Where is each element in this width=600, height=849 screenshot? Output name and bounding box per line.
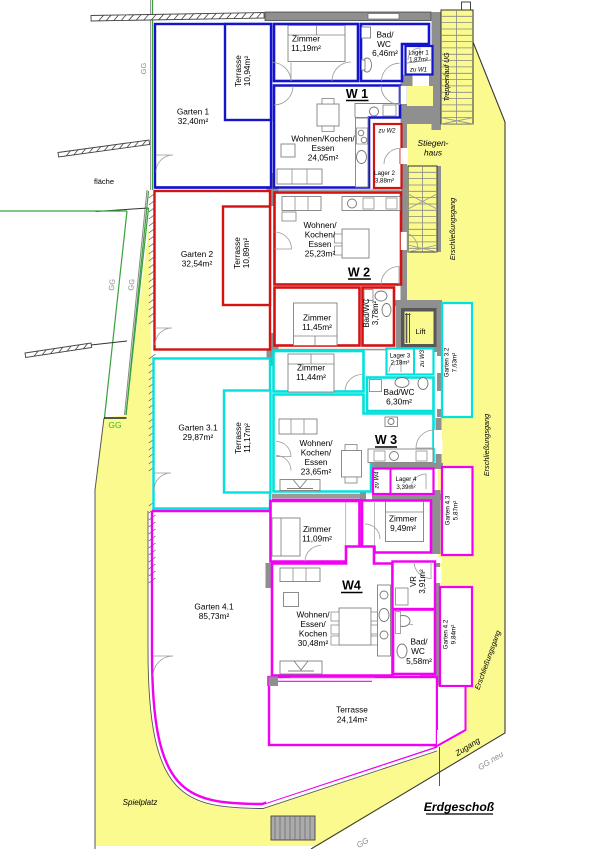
svg-text:Essen: Essen: [308, 239, 331, 249]
svg-text:Lager 1: Lager 1: [408, 51, 429, 57]
svg-text:23,65m²: 23,65m²: [301, 467, 332, 477]
svg-text:85,73m²: 85,73m²: [199, 611, 230, 621]
svg-text:Garten 4.3: Garten 4.3: [445, 495, 452, 525]
svg-text:9,84m²: 9,84m²: [451, 625, 458, 645]
svg-text:Wohnen/: Wohnen/: [299, 438, 333, 448]
svg-text:W 1: W 1: [346, 87, 368, 101]
svg-text:7,63m²: 7,63m²: [452, 353, 459, 373]
svg-text:W4: W4: [342, 579, 361, 593]
svg-text:WC: WC: [411, 646, 425, 656]
svg-text:zu W4: zu W4: [375, 471, 381, 490]
svg-text:GG: GG: [139, 63, 148, 75]
svg-text:Essen/: Essen/: [300, 619, 326, 629]
svg-text:Zimmer: Zimmer: [389, 514, 417, 524]
svg-text:Zimmer: Zimmer: [303, 313, 331, 323]
svg-text:Lager 3: Lager 3: [390, 354, 411, 360]
svg-text:Garten 2: Garten 2: [181, 249, 214, 259]
svg-text:24,14m²: 24,14m²: [337, 715, 368, 725]
svg-text:Lift: Lift: [415, 327, 426, 336]
svg-text:11,44m²: 11,44m²: [296, 372, 326, 382]
svg-text:6,46m²: 6,46m²: [372, 48, 398, 58]
svg-text:haus: haus: [424, 148, 442, 158]
svg-text:Zimmer: Zimmer: [303, 524, 331, 534]
svg-text:Bad/: Bad/: [410, 637, 428, 647]
svg-text:Erschließungsgang: Erschließungsgang: [448, 198, 457, 260]
svg-text:5,58m²: 5,58m²: [406, 656, 432, 666]
svg-text:Garten 3.2: Garten 3.2: [444, 347, 451, 377]
svg-text:zu W2: zu W2: [377, 129, 396, 135]
svg-text:10,94m²: 10,94m²: [242, 56, 252, 87]
svg-text:Wohnen/Kochen/: Wohnen/Kochen/: [291, 134, 355, 144]
svg-text:Kochen/: Kochen/: [305, 230, 336, 240]
svg-text:Zimmer: Zimmer: [292, 34, 320, 44]
svg-text:3,91m²: 3,91m²: [418, 569, 427, 594]
svg-text:GG: GG: [108, 420, 121, 430]
svg-text:Lager 4: Lager 4: [396, 476, 418, 483]
svg-text:Erschließungsgang: Erschließungsgang: [482, 414, 491, 476]
svg-text:Terrasse: Terrasse: [336, 705, 368, 715]
svg-text:GG neu: GG neu: [476, 749, 505, 772]
svg-text:Garten 4.1: Garten 4.1: [194, 602, 234, 612]
svg-text:25,23m²: 25,23m²: [305, 249, 336, 259]
svg-text:6,30m²: 6,30m²: [386, 397, 412, 407]
svg-text:3,78m²: 3,78m²: [371, 300, 380, 325]
svg-text:Lager 2: Lager 2: [374, 170, 396, 177]
svg-text:32,54m²: 32,54m²: [182, 259, 213, 269]
svg-text:Essen: Essen: [304, 457, 327, 467]
svg-text:Garten 4.2: Garten 4.2: [443, 619, 450, 649]
svg-text:GG: GG: [107, 278, 117, 291]
svg-text:5,87m²: 5,87m²: [453, 501, 460, 521]
svg-text:zu W3: zu W3: [420, 349, 426, 368]
svg-text:Zimmer: Zimmer: [297, 363, 325, 373]
svg-text:Wohnen/: Wohnen/: [296, 610, 330, 620]
svg-text:2,18m²: 2,18m²: [391, 361, 410, 367]
svg-text:Spielplatz: Spielplatz: [123, 798, 158, 807]
svg-text:10,89m²: 10,89m²: [241, 238, 251, 269]
svg-text:Garten 1: Garten 1: [177, 107, 210, 117]
svg-text:32,40m²: 32,40m²: [178, 116, 209, 126]
svg-text:9,49m²: 9,49m²: [390, 523, 416, 533]
svg-text:fläche: fläche: [94, 177, 114, 186]
svg-text:29,87m²: 29,87m²: [183, 432, 214, 442]
svg-text:Treppenlauf UG: Treppenlauf UG: [444, 52, 451, 102]
svg-text:Wohnen/: Wohnen/: [303, 220, 337, 230]
svg-text:11,09m²: 11,09m²: [302, 534, 332, 544]
svg-text:3,88m²: 3,88m²: [375, 178, 394, 185]
svg-text:Kochen: Kochen: [299, 629, 328, 639]
svg-text:Essen: Essen: [311, 143, 334, 153]
svg-text:Kochen/: Kochen/: [301, 448, 332, 458]
svg-text:Garten 3.1: Garten 3.1: [178, 423, 218, 433]
svg-text:3,39m²: 3,39m²: [396, 484, 415, 491]
svg-text:11,17m²: 11,17m²: [242, 423, 252, 453]
svg-text:W 2: W 2: [348, 266, 370, 280]
svg-text:GG: GG: [126, 278, 136, 291]
svg-text:11,45m²: 11,45m²: [302, 322, 332, 332]
svg-text:Bad/WC: Bad/WC: [362, 298, 371, 327]
svg-text:30,48m²: 30,48m²: [298, 638, 329, 648]
svg-text:Bad/WC: Bad/WC: [384, 387, 415, 397]
svg-text:11,19m²: 11,19m²: [291, 43, 321, 53]
svg-text:Stiegen-: Stiegen-: [418, 138, 449, 148]
svg-text:GG: GG: [355, 836, 370, 849]
svg-text:W 3: W 3: [375, 433, 397, 447]
svg-text:Erdgeschoß: Erdgeschoß: [424, 800, 495, 814]
svg-text:zu W1: zu W1: [409, 68, 427, 74]
svg-text:24,05m²: 24,05m²: [308, 153, 339, 163]
svg-text:VR: VR: [409, 576, 418, 587]
svg-text:Bad/: Bad/: [376, 30, 394, 40]
